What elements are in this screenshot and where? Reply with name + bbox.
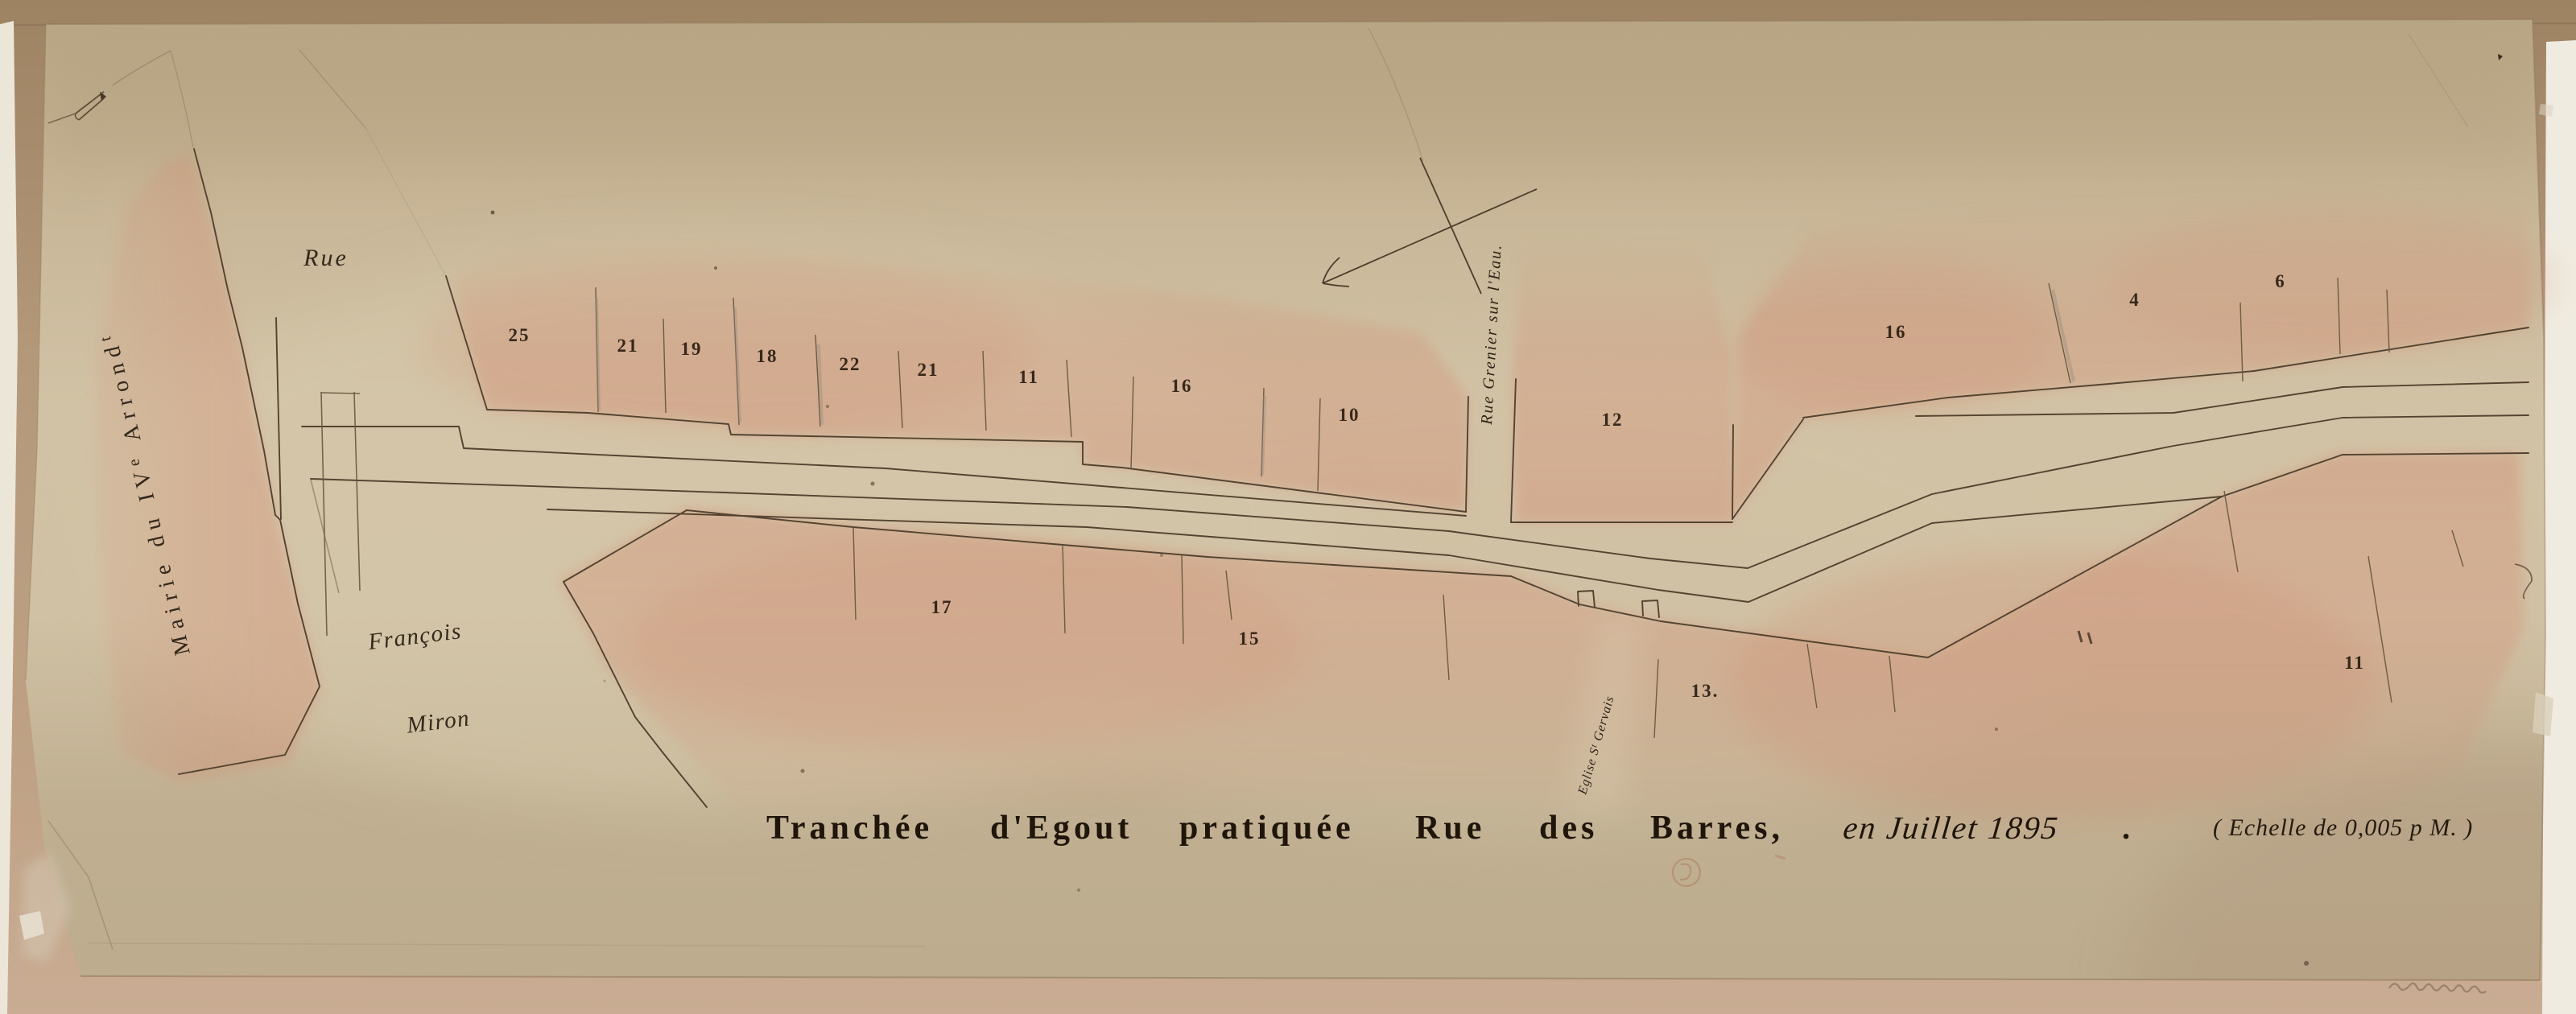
svg-text:16: 16 [1171,376,1193,396]
svg-text:Barres,: Barres, [1650,810,1784,847]
svg-text:4: 4 [2129,290,2140,310]
svg-text:Rue: Rue [1415,810,1485,847]
svg-text:19: 19 [681,339,703,359]
svg-text:d'Egout: d'Egout [990,810,1133,847]
svg-text:Tranchée: Tranchée [766,810,933,847]
svg-text:en Juillet 1895: en Juillet 1895 [1842,810,2061,846]
svg-text:21: 21 [918,360,939,380]
svg-text:21: 21 [617,336,639,356]
svg-text:pratiquée: pratiquée [1179,810,1355,847]
svg-text:17: 17 [931,597,953,617]
svg-text:.: . [2122,810,2130,846]
svg-text:10: 10 [1339,405,1360,425]
svg-text:13.: 13. [1691,681,1719,701]
svg-text:15: 15 [1239,629,1261,649]
svg-text:16: 16 [1885,322,1907,342]
svg-text:11: 11 [2344,653,2365,673]
svg-text:11: 11 [1018,367,1039,387]
svg-text:18: 18 [757,346,778,366]
svg-text:des: des [1539,810,1598,847]
svg-text:25: 25 [509,325,530,345]
svg-text:6: 6 [2275,271,2286,291]
svg-text:( Echelle de 0,005 p M. ): ( Echelle de 0,005 p M. ) [2213,814,2473,841]
svg-text:22: 22 [840,354,861,374]
svg-text:12: 12 [1602,410,1624,430]
svg-text:Rue: Rue [303,245,349,271]
